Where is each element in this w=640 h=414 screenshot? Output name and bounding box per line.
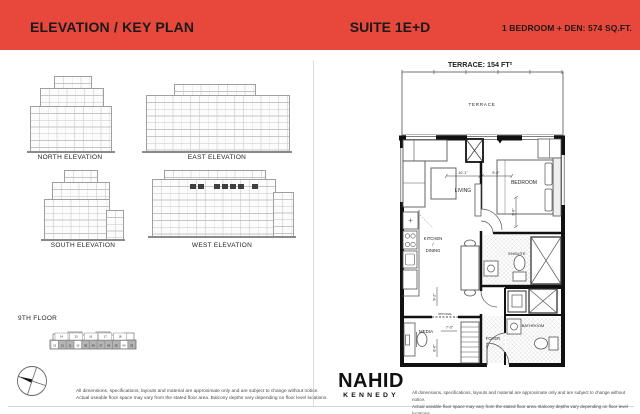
disclaimer-line: Actual useable floor space may vary from… bbox=[412, 404, 636, 414]
keyplan-floor-label: 9TH FLOOR bbox=[18, 315, 57, 322]
shaft-column bbox=[466, 139, 483, 162]
keyplan-unit: 13 bbox=[53, 343, 57, 347]
keyplan-unit: 03 bbox=[130, 343, 134, 347]
keyplan-unit: 16 bbox=[89, 335, 93, 339]
living-label: LIVING bbox=[455, 188, 472, 194]
kitchen-label: / bbox=[432, 242, 434, 247]
south-elevation-drawing bbox=[44, 170, 122, 242]
dim-media-depth: 8'-6" bbox=[433, 344, 437, 352]
dim-living-width: 10'-1" bbox=[458, 171, 468, 175]
highlighted-unit-cell bbox=[252, 184, 258, 189]
keyplan-unit: 12 bbox=[61, 343, 65, 347]
kitchen-label: DINING bbox=[426, 248, 441, 253]
highlighted-unit-cell bbox=[214, 184, 220, 189]
highlighted-unit-cell bbox=[230, 184, 236, 189]
keyplan-unit: 08 bbox=[92, 343, 96, 347]
dim-bedroom-depth: 9'-6" bbox=[512, 208, 516, 216]
floorplan-sheet: ELEVATION / KEY PLAN SUITE 1E+D 1 BEDROO… bbox=[0, 0, 640, 414]
keyplan-unit: 07 bbox=[99, 343, 103, 347]
dim-bedroom-width: 9'-0" bbox=[492, 171, 500, 175]
north-arrow-icon bbox=[14, 364, 50, 400]
terrace-label: TERRACE bbox=[468, 102, 495, 107]
dim-media-width: 7'-3" bbox=[446, 326, 454, 330]
unit-info: 1 BEDROOM + DEN: 574 SQ.FT. bbox=[450, 23, 632, 33]
keyplan-unit: 14 bbox=[60, 335, 64, 339]
bathroom-label: BATHROOM bbox=[522, 323, 545, 328]
ensuite-label: ENSUITE bbox=[508, 251, 526, 256]
keyplan-unit: 15 bbox=[75, 335, 79, 339]
disclaimer-right: All dimensions, specifications, layouts … bbox=[412, 390, 636, 414]
page-title: ELEVATION / KEY PLAN bbox=[30, 19, 194, 35]
logo-wordmark: NAHID bbox=[330, 371, 412, 391]
media-label: MEDIA bbox=[419, 329, 433, 334]
keyplan-unit: 04 bbox=[122, 343, 126, 347]
media-furniture bbox=[404, 323, 427, 356]
east-elevation-label: EAST ELEVATION bbox=[146, 154, 288, 161]
suite-floorplan: TERRACE: 154 FT² TERRACE bbox=[395, 52, 570, 374]
builder-logo: NAHID KENNEDY bbox=[330, 371, 412, 399]
west-elevation-label: WEST ELEVATION bbox=[152, 242, 292, 249]
keyplan-unit: 11 bbox=[69, 343, 72, 347]
highlighted-unit-cell bbox=[222, 184, 228, 189]
keyplan-drawing: 14 15 16 17 18 13 12 11 10 09 08 07 bbox=[46, 325, 140, 355]
keyplan-unit: 10 bbox=[76, 343, 80, 347]
bedroom-label: BEDROOM bbox=[511, 180, 537, 186]
south-elevation-label: SOUTH ELEVATION bbox=[44, 242, 122, 249]
disclaimer-left: All dimensions, specifications, layouts … bbox=[76, 388, 334, 403]
logo-subtext: KENNEDY bbox=[330, 392, 412, 399]
vertical-divider bbox=[313, 60, 314, 406]
west-elevation-drawing bbox=[152, 170, 292, 242]
kitchen-label: KITCHEN bbox=[424, 236, 442, 241]
east-elevation-drawing bbox=[146, 84, 288, 154]
dining-table bbox=[461, 240, 479, 296]
terrace-area-title: TERRACE: 154 FT² bbox=[448, 60, 513, 69]
north-elevation-label: NORTH ELEVATION bbox=[30, 154, 110, 161]
bedroom-furniture bbox=[497, 139, 561, 216]
kitchen-fixtures bbox=[402, 210, 433, 296]
highlighted-unit-cell bbox=[190, 184, 196, 189]
disclaimer-line: Actual useable floor space may vary from… bbox=[76, 395, 334, 402]
keyplan-unit: 09 bbox=[84, 343, 88, 347]
header-bar: ELEVATION / KEY PLAN SUITE 1E+D 1 BEDROO… bbox=[0, 0, 640, 50]
keyplan-unit: 18 bbox=[118, 335, 122, 339]
optional-label: OPTIONAL bbox=[438, 312, 453, 316]
keyplan-unit: 17 bbox=[104, 335, 108, 339]
keyplan-unit: 06 bbox=[107, 343, 111, 347]
highlighted-unit-cell bbox=[198, 184, 204, 189]
highlighted-unit-cell bbox=[238, 184, 244, 189]
disclaimer-line: All dimensions, specifications, layouts … bbox=[412, 390, 636, 404]
foyer-label: FOYER bbox=[486, 336, 500, 341]
dim-kitchen-depth: 9'-2" bbox=[433, 293, 437, 301]
keyplan-unit: 05 bbox=[115, 343, 119, 347]
north-elevation-drawing bbox=[30, 74, 110, 154]
disclaimer-line: All dimensions, specifications, layouts … bbox=[76, 388, 334, 395]
